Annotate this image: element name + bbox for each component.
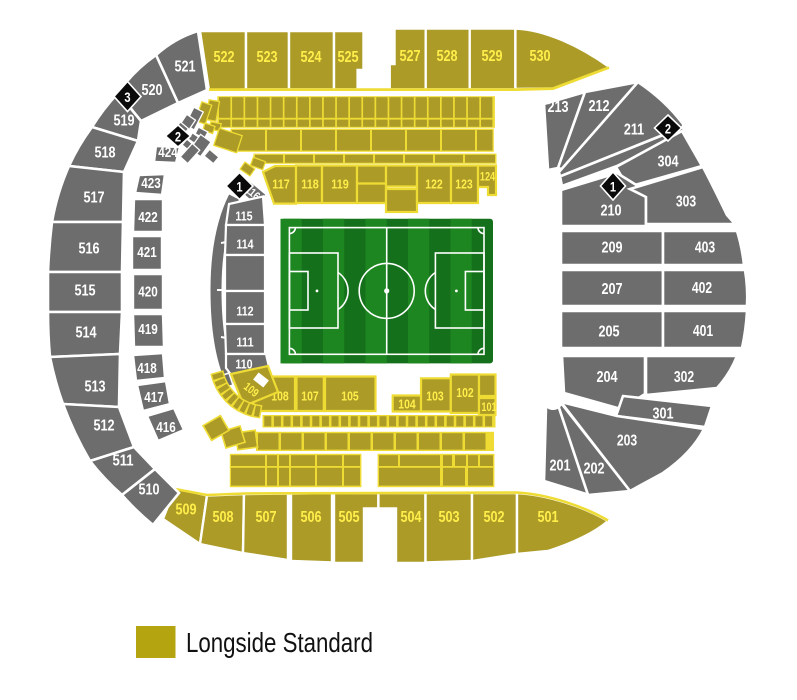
svg-text:422: 422 xyxy=(138,210,158,226)
svg-text:124: 124 xyxy=(480,171,496,184)
svg-text:204: 204 xyxy=(596,369,617,386)
svg-text:302: 302 xyxy=(674,369,694,386)
svg-text:516: 516 xyxy=(78,241,99,258)
svg-text:114: 114 xyxy=(236,237,254,252)
svg-text:505: 505 xyxy=(338,509,359,526)
svg-text:420: 420 xyxy=(138,285,158,301)
svg-text:513: 513 xyxy=(84,379,105,396)
svg-text:119: 119 xyxy=(331,177,348,192)
svg-text:211: 211 xyxy=(624,122,645,139)
svg-text:102: 102 xyxy=(456,385,473,400)
svg-text:Longside Standard: Longside Standard xyxy=(186,627,373,658)
svg-text:205: 205 xyxy=(598,324,619,341)
svg-text:213: 213 xyxy=(547,99,568,116)
svg-text:525: 525 xyxy=(337,49,358,66)
svg-text:529: 529 xyxy=(481,48,502,65)
svg-text:112: 112 xyxy=(236,304,253,319)
svg-text:203: 203 xyxy=(617,433,637,450)
svg-text:104: 104 xyxy=(398,397,416,412)
svg-text:508: 508 xyxy=(212,509,233,526)
svg-text:423: 423 xyxy=(141,176,161,192)
svg-text:517: 517 xyxy=(83,190,104,207)
svg-text:502: 502 xyxy=(483,509,504,526)
svg-text:118: 118 xyxy=(301,177,318,192)
svg-text:503: 503 xyxy=(438,509,459,526)
svg-text:504: 504 xyxy=(400,509,421,526)
svg-text:107: 107 xyxy=(301,389,318,404)
svg-text:201: 201 xyxy=(549,458,570,475)
svg-text:528: 528 xyxy=(436,48,457,65)
svg-text:301: 301 xyxy=(652,406,673,423)
svg-text:419: 419 xyxy=(138,322,158,338)
svg-text:212: 212 xyxy=(588,98,609,115)
svg-text:101: 101 xyxy=(481,401,497,414)
svg-text:209: 209 xyxy=(601,240,622,257)
svg-text:522: 522 xyxy=(213,49,234,66)
svg-text:402: 402 xyxy=(692,280,712,297)
svg-text:207: 207 xyxy=(601,281,622,298)
svg-text:424: 424 xyxy=(158,145,178,161)
svg-text:520: 520 xyxy=(141,82,162,99)
svg-text:115: 115 xyxy=(235,209,252,224)
svg-text:501: 501 xyxy=(537,509,558,526)
svg-text:210: 210 xyxy=(600,203,621,220)
svg-text:303: 303 xyxy=(676,194,696,211)
svg-text:416: 416 xyxy=(156,420,176,436)
svg-text:103: 103 xyxy=(426,389,443,404)
svg-text:304: 304 xyxy=(657,154,678,171)
svg-text:524: 524 xyxy=(300,49,321,66)
svg-text:403: 403 xyxy=(695,240,715,257)
svg-text:202: 202 xyxy=(583,461,604,478)
svg-text:421: 421 xyxy=(137,245,157,261)
svg-text:521: 521 xyxy=(174,59,195,76)
svg-text:519: 519 xyxy=(113,113,134,130)
svg-text:507: 507 xyxy=(255,509,276,526)
svg-text:122: 122 xyxy=(425,177,442,192)
svg-text:511: 511 xyxy=(112,453,133,470)
svg-text:527: 527 xyxy=(399,48,420,65)
svg-text:530: 530 xyxy=(529,48,550,65)
svg-text:417: 417 xyxy=(144,390,164,406)
svg-text:518: 518 xyxy=(94,145,115,162)
svg-text:512: 512 xyxy=(93,418,114,435)
svg-text:515: 515 xyxy=(74,283,95,300)
svg-text:2: 2 xyxy=(175,129,181,145)
svg-text:401: 401 xyxy=(693,323,714,340)
svg-text:2: 2 xyxy=(665,121,671,137)
svg-text:1: 1 xyxy=(236,179,242,195)
svg-text:523: 523 xyxy=(256,49,277,66)
svg-text:105: 105 xyxy=(341,389,358,404)
svg-text:117: 117 xyxy=(272,177,289,192)
svg-text:3: 3 xyxy=(124,89,130,105)
svg-text:509: 509 xyxy=(175,502,196,519)
svg-text:111: 111 xyxy=(236,335,253,350)
svg-text:506: 506 xyxy=(300,509,321,526)
svg-text:123: 123 xyxy=(455,177,472,192)
svg-text:514: 514 xyxy=(75,325,96,342)
svg-text:510: 510 xyxy=(138,482,159,499)
svg-text:418: 418 xyxy=(137,361,157,377)
svg-text:1: 1 xyxy=(610,179,616,195)
